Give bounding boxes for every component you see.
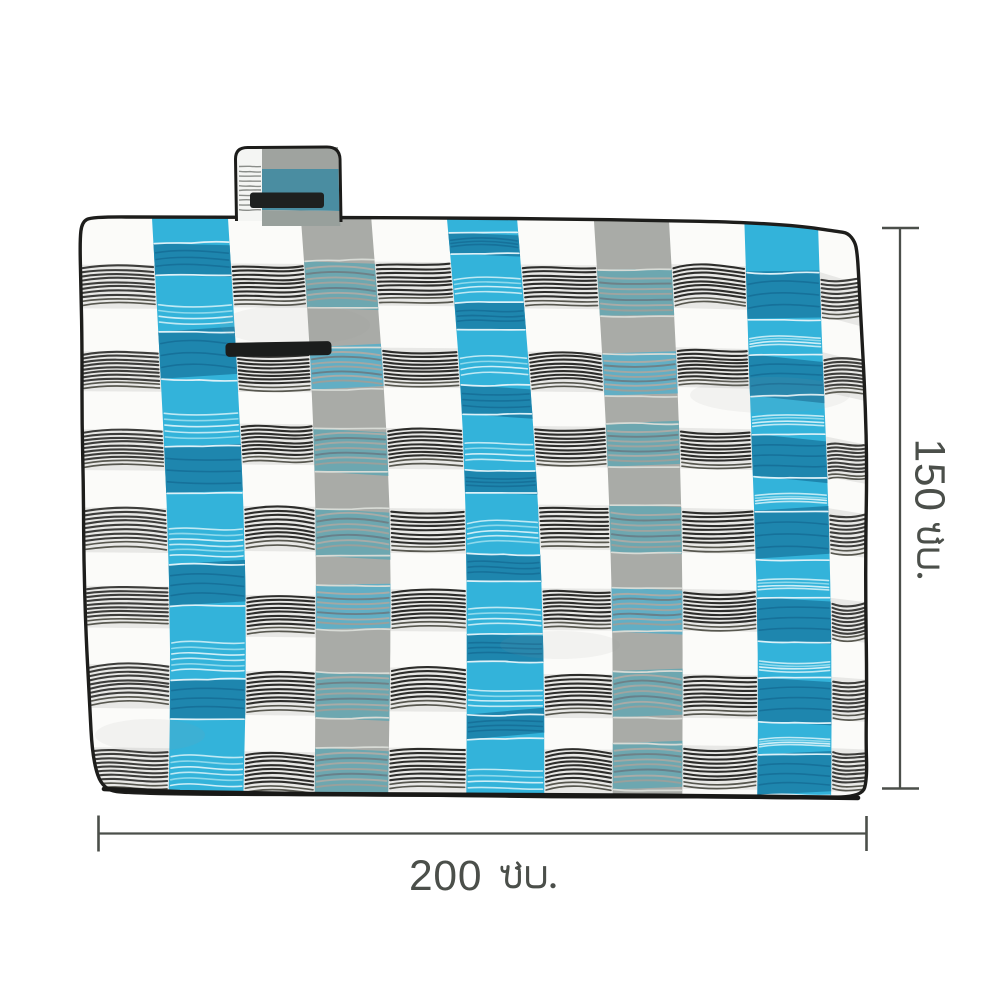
svg-text:200: 200 (409, 853, 482, 900)
svg-text:150: 150 (906, 439, 953, 512)
